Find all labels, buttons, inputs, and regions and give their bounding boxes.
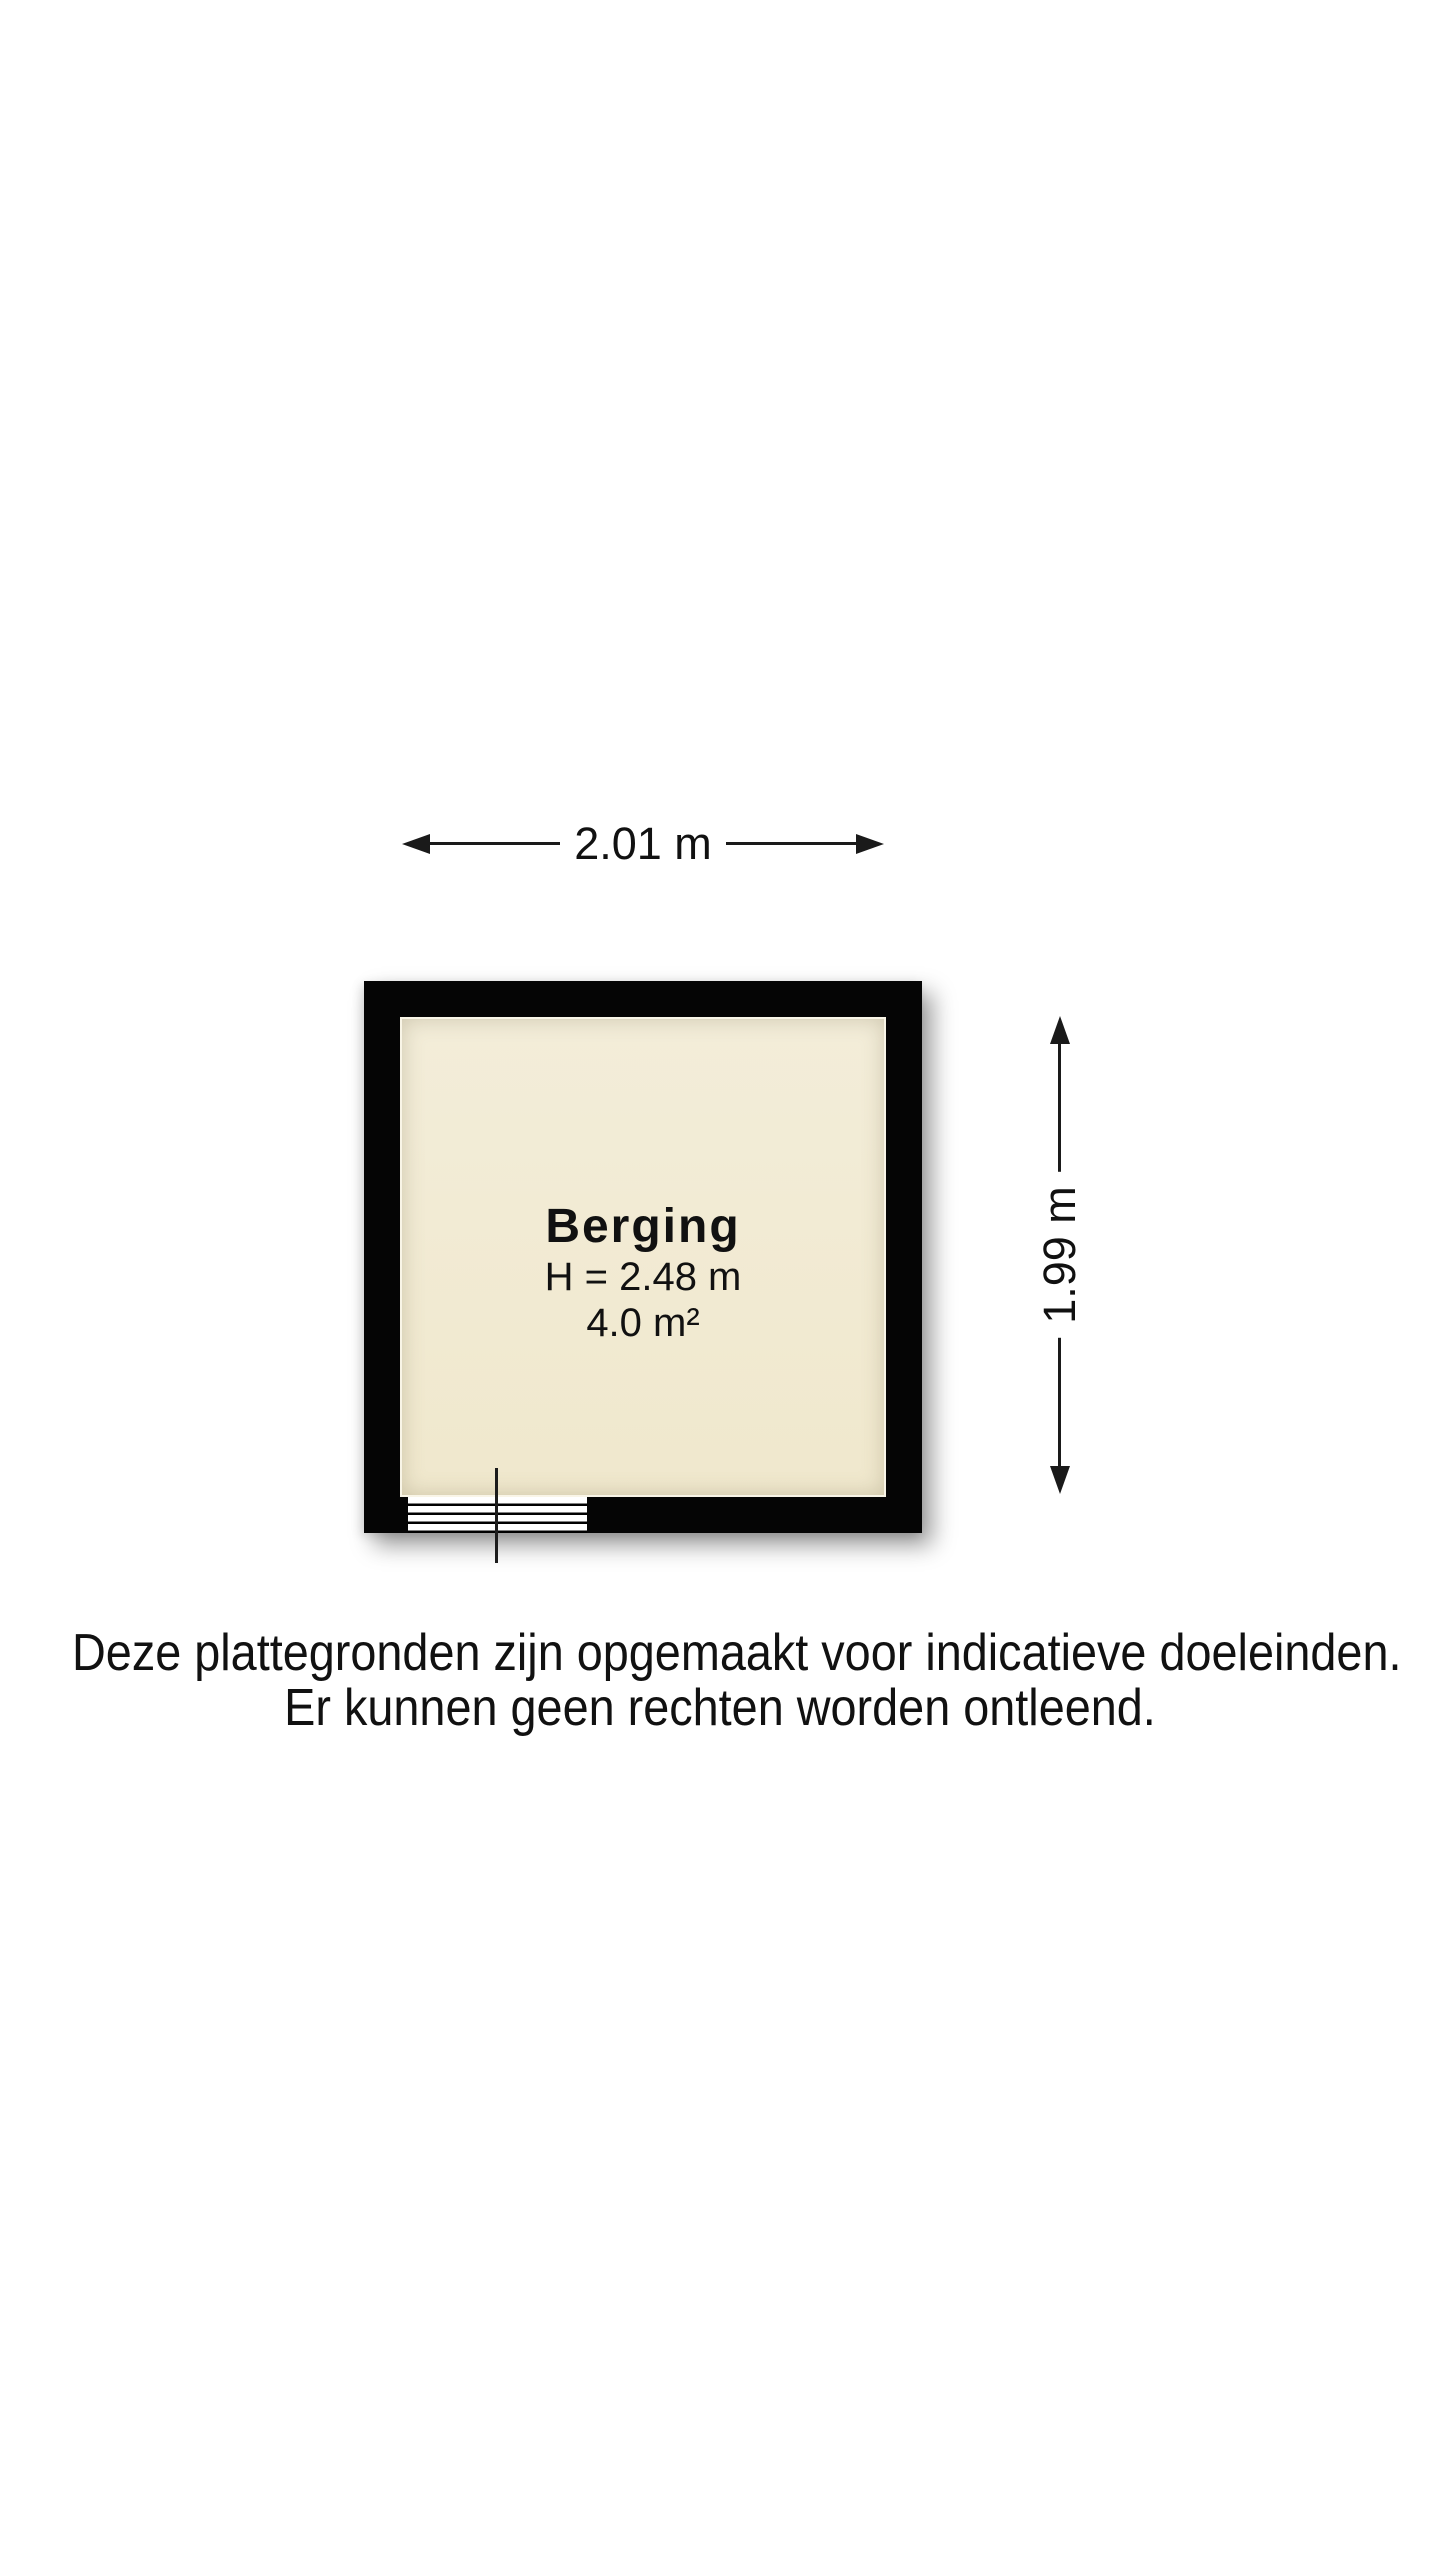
disclaimer-line-1: Deze plattegronden zijn opgemaakt voor i…: [72, 1626, 1368, 1681]
width-dimension: 2.01 m: [402, 818, 884, 870]
height-dimension: 1.99 m: [1034, 1016, 1086, 1494]
room-area: 4.0 m²: [545, 1300, 742, 1346]
disclaimer-line-2: Er kunnen geen rechten worden ontleend.: [72, 1681, 1368, 1736]
door-marker-line: [495, 1468, 498, 1563]
room-floor: Berging H = 2.48 m 4.0 m²: [400, 1017, 886, 1497]
arrow-down-icon: [1050, 1466, 1070, 1494]
room-ceiling-height: H = 2.48 m: [545, 1254, 742, 1300]
disclaimer: Deze plattegronden zijn opgemaakt voor i…: [0, 1626, 1440, 1736]
height-dimension-label: 1.99 m: [1034, 1172, 1086, 1338]
arrow-right-icon: [856, 834, 884, 854]
room-label: Berging H = 2.48 m 4.0 m²: [545, 1200, 742, 1346]
width-dimension-label: 2.01 m: [560, 818, 726, 870]
room-walls: Berging H = 2.48 m 4.0 m²: [364, 981, 922, 1533]
floorplan-page: 2.01 m 1.99 m Berging H = 2.48 m 4.0 m² …: [0, 0, 1440, 2560]
room-name: Berging: [545, 1200, 742, 1254]
